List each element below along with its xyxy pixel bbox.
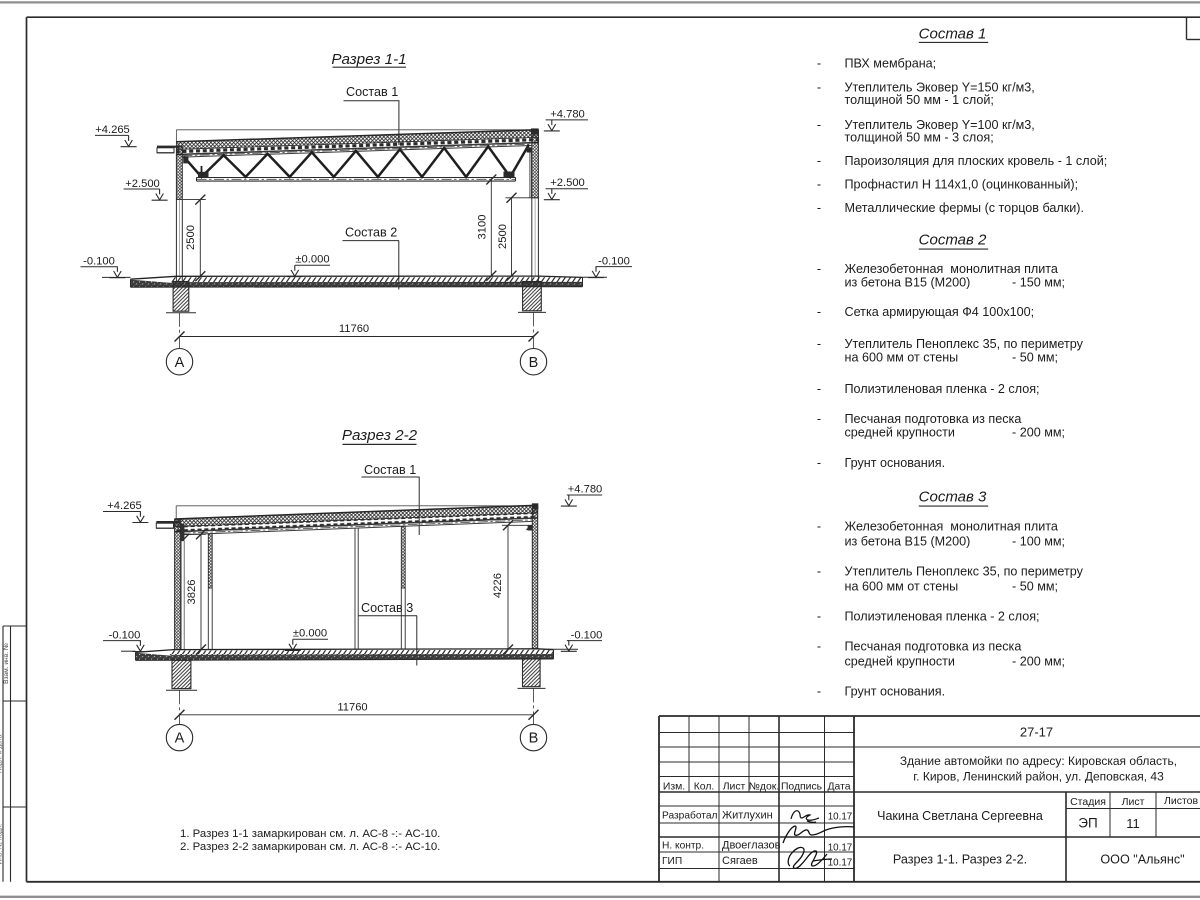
svg-text:Полиэтиленовая пленка - 2 слоя: Полиэтиленовая пленка - 2 слоя; [845, 382, 1040, 396]
svg-text:+2.500: +2.500 [125, 178, 160, 190]
svg-text:-: - [817, 565, 821, 579]
svg-text:Состав 1: Состав 1 [919, 25, 987, 42]
svg-text:Состав 3: Состав 3 [919, 489, 987, 506]
svg-text:-: - [817, 610, 821, 624]
svg-text:-: - [817, 154, 821, 168]
svg-text:3100: 3100 [477, 215, 489, 240]
svg-text:+4.265: +4.265 [107, 500, 142, 512]
svg-text:Разрез 1-1. Разрез 2-2.: Разрез 1-1. Разрез 2-2. [893, 853, 1027, 867]
svg-text:Лист: Лист [1122, 796, 1145, 808]
svg-text:11: 11 [1126, 816, 1140, 831]
svg-text:4226: 4226 [492, 573, 504, 598]
svg-text:-: - [817, 118, 821, 132]
svg-text:-: - [817, 412, 821, 426]
svg-text:-: - [817, 262, 821, 276]
svg-text:В: В [529, 355, 539, 371]
svg-text:Здание автомойки по адресу: Ки: Здание автомойки по адресу: Кировская об… [900, 754, 1177, 768]
svg-text:2500: 2500 [497, 224, 509, 249]
svg-text:Железобетонная монолитная пли: Железобетонная монолитная плита [845, 520, 1058, 534]
svg-text:А: А [175, 355, 185, 371]
svg-text:Состав 1: Состав 1 [364, 463, 416, 477]
svg-text:+2.500: +2.500 [550, 177, 585, 189]
svg-text:-: - [817, 640, 821, 654]
svg-text:Профнастил Н 114х1,0 (оцинкова: Профнастил Н 114х1,0 (оцинкованный); [845, 177, 1079, 191]
svg-text:Чакина Светлана Сергеевна: Чакина Светлана Сергеевна [877, 809, 1043, 823]
svg-text:Состав 2: Состав 2 [919, 232, 987, 249]
svg-text:±0.000: ±0.000 [293, 628, 327, 640]
svg-text:27-17: 27-17 [1020, 724, 1053, 739]
svg-text:-: - [817, 201, 821, 215]
svg-text:Грунт основания.: Грунт основания. [845, 685, 946, 699]
svg-text:Металлические фермы (с торцов: Металлические фермы (с торцов балки). [845, 201, 1084, 215]
svg-text:Грунт основания.: Грунт основания. [845, 456, 946, 470]
svg-text:Листов: Листов [1164, 795, 1199, 807]
svg-text:2500: 2500 [185, 225, 197, 250]
svg-text:Разрез 1-1: Разрез 1-1 [331, 51, 406, 68]
svg-text:Стадия: Стадия [1070, 796, 1106, 808]
svg-text:-: - [817, 520, 821, 534]
svg-text:Железобетонная монолитная пли: Железобетонная монолитная плита [845, 262, 1058, 276]
svg-text:на 600 мм от стены: на 600 мм от стены [845, 351, 959, 365]
svg-text:Состав 1: Состав 1 [346, 85, 398, 99]
svg-text:ЭП: ЭП [1078, 816, 1097, 831]
svg-text:Инв. № подл.: Инв. № подл. [0, 823, 4, 864]
svg-text:-: - [817, 382, 821, 396]
svg-text:Житлухин: Житлухин [722, 810, 773, 822]
svg-text:Сягаев: Сягаев [722, 855, 758, 867]
svg-text:средней крупности: средней крупности [845, 655, 955, 669]
svg-text:Разрез 2-2: Разрез 2-2 [342, 427, 418, 444]
svg-text:- 50 мм;: - 50 мм; [1012, 351, 1058, 365]
svg-text:В: В [529, 731, 539, 747]
svg-text:толщиной 50 мм - 3 слоя;: толщиной 50 мм - 3 слоя; [845, 130, 994, 144]
svg-text:- 100 мм;: - 100 мм; [1012, 535, 1065, 549]
svg-text:-: - [817, 685, 821, 699]
svg-text:1. Разрез 1-1 замаркирован см.: 1. Разрез 1-1 замаркирован см. л. АС-8 -… [180, 828, 440, 840]
svg-text:из бетона В15 (М200): из бетона В15 (М200) [845, 276, 971, 290]
svg-text:средней крупности: средней крупности [845, 426, 955, 440]
svg-text:- 200 мм;: - 200 мм; [1012, 426, 1065, 440]
svg-text:- 200 мм;: - 200 мм; [1012, 655, 1065, 669]
svg-text:Песчаная подготовка из песка: Песчаная подготовка из песка [845, 640, 1022, 654]
svg-text:-: - [817, 337, 821, 351]
svg-text:11760: 11760 [339, 323, 369, 335]
svg-text:Взам. инв. №: Взам. инв. № [3, 643, 10, 684]
svg-text:10.17: 10.17 [828, 812, 853, 823]
svg-text:±0.000: ±0.000 [295, 254, 329, 266]
svg-text:Двоеглазов: Двоеглазов [722, 840, 781, 852]
svg-text:Подпись: Подпись [781, 782, 822, 793]
svg-text:-0.100: -0.100 [598, 256, 630, 268]
svg-text:-0.100: -0.100 [109, 629, 141, 641]
svg-text:ООО "Альянс": ООО "Альянс" [1100, 853, 1184, 867]
svg-text:Состав 2: Состав 2 [345, 226, 397, 240]
svg-text:+4.780: +4.780 [550, 108, 585, 120]
svg-text:2. Разрез 2-2 замаркирован см.: 2. Разрез 2-2 замаркирован см. л. АС-8 -… [180, 841, 440, 853]
svg-text:11760: 11760 [337, 701, 367, 713]
svg-text:+4.780: +4.780 [568, 483, 603, 495]
svg-text:Пароизоляция для плоских крове: Пароизоляция для плоских кровель - 1 сло… [845, 154, 1108, 168]
svg-text:Дата: Дата [827, 782, 850, 793]
svg-text:А: А [175, 731, 185, 747]
svg-text:из бетона В15 (М200): из бетона В15 (М200) [845, 535, 971, 549]
svg-text:- 50 мм;: - 50 мм; [1012, 580, 1058, 594]
svg-text:г. Киров, Ленинский район, ул.: г. Киров, Ленинский район, ул. Деповская… [913, 770, 1164, 784]
svg-text:-0.100: -0.100 [571, 629, 603, 641]
svg-text:Изм.: Изм. [663, 782, 685, 793]
svg-text:-: - [817, 81, 821, 95]
svg-text:на 600 мм от стены: на 600 мм от стены [845, 580, 959, 594]
svg-text:Кол.: Кол. [694, 782, 715, 793]
svg-text:-: - [817, 456, 821, 470]
svg-text:Полиэтиленовая пленка - 2 слоя: Полиэтиленовая пленка - 2 слоя; [845, 610, 1040, 624]
svg-text:Подп. и дата: Подп. и дата [0, 734, 4, 773]
svg-text:10.17: 10.17 [828, 843, 853, 854]
svg-text:Утеплитель Пеноплекс 35, по пе: Утеплитель Пеноплекс 35, по периметру [845, 337, 1084, 351]
svg-text:-0.100: -0.100 [83, 256, 115, 268]
svg-text:Песчаная подготовка из песка: Песчаная подготовка из песка [845, 412, 1022, 426]
svg-text:+4.265: +4.265 [95, 124, 130, 136]
svg-text:- 150 мм;: - 150 мм; [1012, 276, 1065, 290]
svg-text:Н. контр.: Н. контр. [662, 841, 704, 852]
svg-text:Сетка армирующая Ф4 100х100;: Сетка армирующая Ф4 100х100; [845, 305, 1035, 319]
svg-text:Лист: Лист [723, 782, 746, 793]
svg-text:толщиной 50 мм - 1 слой;: толщиной 50 мм - 1 слой; [845, 93, 994, 107]
svg-text:ГИП: ГИП [662, 856, 682, 867]
svg-text:3826: 3826 [186, 580, 198, 605]
svg-text:№док.: №док. [749, 782, 779, 793]
svg-text:Утеплитель Пеноплекс 35, по пе: Утеплитель Пеноплекс 35, по периметру [845, 565, 1084, 579]
svg-text:-: - [817, 305, 821, 319]
svg-text:-: - [817, 177, 821, 191]
svg-text:Разработал: Разработал [662, 810, 718, 822]
svg-text:-: - [817, 57, 821, 71]
svg-text:ПВХ мембрана;: ПВХ мембрана; [845, 57, 937, 71]
